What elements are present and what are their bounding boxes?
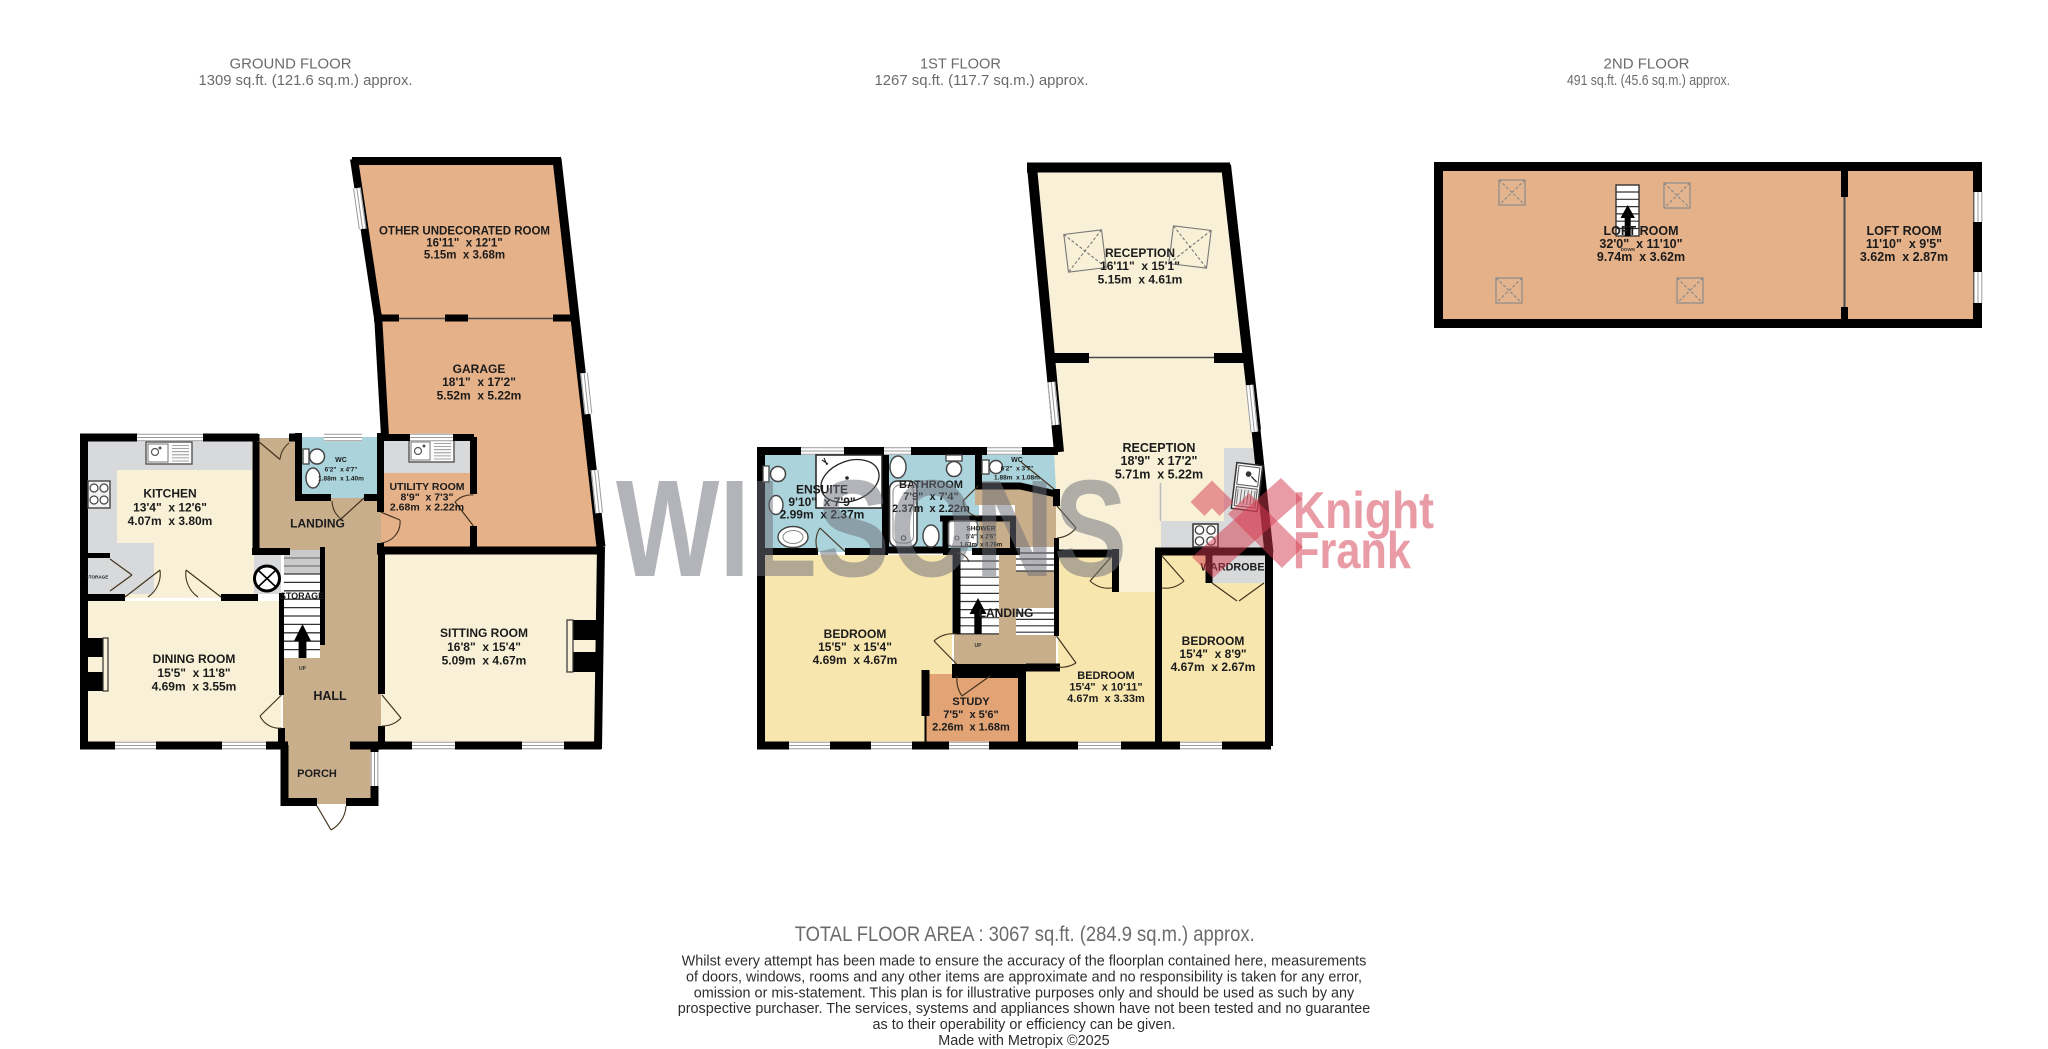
svg-text:HALL: HALL — [313, 689, 347, 703]
svg-text:omission or mis-statement. Thi: omission or mis-statement. This plan is … — [694, 985, 1355, 1001]
svg-text:KITCHEN: KITCHEN — [143, 487, 196, 501]
svg-text:6'2" x 4'7": 6'2" x 4'7" — [325, 467, 358, 474]
svg-text:15'5" x 15'4": 15'5" x 15'4" — [818, 640, 892, 654]
svg-text:UP: UP — [299, 666, 307, 672]
svg-text:15'4" x 10'11": 15'4" x 10'11" — [1069, 682, 1142, 694]
svg-text:1267 sq.ft. (117.7 sq.m.) appr: 1267 sq.ft. (117.7 sq.m.) approx. — [875, 72, 1089, 89]
svg-text:4.67m x 3.33m: 4.67m x 3.33m — [1067, 693, 1145, 705]
svg-text:STORAGE: STORAGE — [280, 591, 324, 601]
svg-text:prospective purchaser. The ser: prospective purchaser. The services, sys… — [678, 1001, 1371, 1017]
svg-text:LANDING: LANDING — [979, 606, 1034, 620]
svg-text:Frank: Frank — [1293, 522, 1411, 580]
svg-text:18'1" x 17'2": 18'1" x 17'2" — [442, 375, 516, 389]
svg-text:of doors, windows, rooms and a: of doors, windows, rooms and any other i… — [686, 969, 1362, 985]
svg-text:4.69m x 4.67m: 4.69m x 4.67m — [813, 653, 898, 667]
svg-text:TOTAL FLOOR AREA : 3067 sq.ft.: TOTAL FLOOR AREA : 3067 sq.ft. (284.9 sq… — [795, 923, 1255, 946]
svg-text:5.09m x 4.67m: 5.09m x 4.67m — [442, 654, 527, 668]
svg-text:STUDY: STUDY — [952, 696, 990, 708]
svg-text:1ST FLOOR: 1ST FLOOR — [920, 56, 1001, 73]
svg-text:4.67m x 2.67m: 4.67m x 2.67m — [1171, 660, 1256, 674]
svg-text:9.74m x 3.62m: 9.74m x 3.62m — [1597, 250, 1685, 264]
svg-text:as to their operability or eff: as to their operability or efficiency ca… — [873, 1017, 1176, 1033]
svg-text:15'4" x 8'9": 15'4" x 8'9" — [1179, 647, 1246, 661]
svg-text:GARAGE: GARAGE — [453, 362, 506, 376]
svg-text:5.15m x 3.68m: 5.15m x 3.68m — [424, 250, 505, 262]
svg-text:PORCH: PORCH — [297, 768, 337, 780]
svg-text:UP: UP — [975, 643, 983, 649]
svg-text:15'5" x 11'8": 15'5" x 11'8" — [157, 666, 230, 680]
svg-text:BEDROOM: BEDROOM — [824, 627, 887, 641]
svg-text:4.07m x 3.80m: 4.07m x 3.80m — [128, 514, 213, 528]
svg-text:BEDROOM: BEDROOM — [1182, 634, 1245, 648]
svg-text:1.88m x 1.40m: 1.88m x 1.40m — [318, 476, 364, 483]
svg-text:16'11" x 12'1": 16'11" x 12'1" — [426, 238, 503, 250]
svg-text:LOFT ROOM: LOFT ROOM — [1604, 224, 1679, 238]
svg-text:DINING ROOM: DINING ROOM — [153, 652, 236, 666]
svg-text:GROUND FLOOR: GROUND FLOOR — [230, 56, 352, 73]
svg-text:1309 sq.ft. (121.6 sq.m.) appr: 1309 sq.ft. (121.6 sq.m.) approx. — [199, 72, 413, 89]
svg-text:OTHER UNDECORATED ROOM: OTHER UNDECORATED ROOM — [379, 226, 550, 238]
svg-text:2ND FLOOR: 2ND FLOOR — [1604, 56, 1690, 73]
svg-text:32'0" x 11'10": 32'0" x 11'10" — [1599, 237, 1682, 251]
svg-text:RECEPTION: RECEPTION — [1123, 441, 1196, 455]
svg-text:18'9" x 17'2": 18'9" x 17'2" — [1121, 454, 1198, 468]
svg-text:2.68m x 2.22m: 2.68m x 2.22m — [390, 502, 464, 514]
svg-text:5.15m x 4.61m: 5.15m x 4.61m — [1098, 272, 1183, 286]
svg-text:RECEPTION: RECEPTION — [1105, 246, 1175, 260]
svg-text:LANDING: LANDING — [290, 517, 345, 531]
svg-text:7'5" x 5'6": 7'5" x 5'6" — [943, 709, 998, 721]
svg-text:3.62m x 2.87m: 3.62m x 2.87m — [1860, 250, 1948, 264]
svg-text:491 sq.ft. (45.6 sq.m.) approx: 491 sq.ft. (45.6 sq.m.) approx. — [1567, 72, 1730, 89]
svg-text:WILSONS: WILSONS — [616, 452, 1127, 606]
svg-text:Made with Metropix ©2025: Made with Metropix ©2025 — [938, 1033, 1109, 1049]
svg-text:SITTING ROOM: SITTING ROOM — [440, 626, 528, 640]
svg-text:16'8" x 15'4": 16'8" x 15'4" — [447, 640, 521, 654]
svg-text:5.52m x 5.22m: 5.52m x 5.22m — [437, 388, 522, 402]
svg-text:LOFT ROOM: LOFT ROOM — [1867, 224, 1942, 238]
svg-text:11'10" x 9'5": 11'10" x 9'5" — [1866, 237, 1942, 251]
svg-text:16'11" x 15'1": 16'11" x 15'1" — [1100, 259, 1180, 273]
svg-text:WC: WC — [335, 457, 347, 464]
svg-text:4.69m x 3.55m: 4.69m x 3.55m — [152, 680, 237, 694]
svg-text:2.26m x 1.68m: 2.26m x 1.68m — [932, 722, 1010, 734]
svg-text:BEDROOM: BEDROOM — [1077, 670, 1134, 682]
svg-text:13'4" x 12'6": 13'4" x 12'6" — [133, 500, 207, 514]
svg-text:5.71m x 5.22m: 5.71m x 5.22m — [1115, 467, 1203, 481]
svg-text:STORAGE: STORAGE — [86, 575, 109, 580]
svg-text:Whilst every attempt has been: Whilst every attempt has been made to en… — [682, 954, 1367, 970]
